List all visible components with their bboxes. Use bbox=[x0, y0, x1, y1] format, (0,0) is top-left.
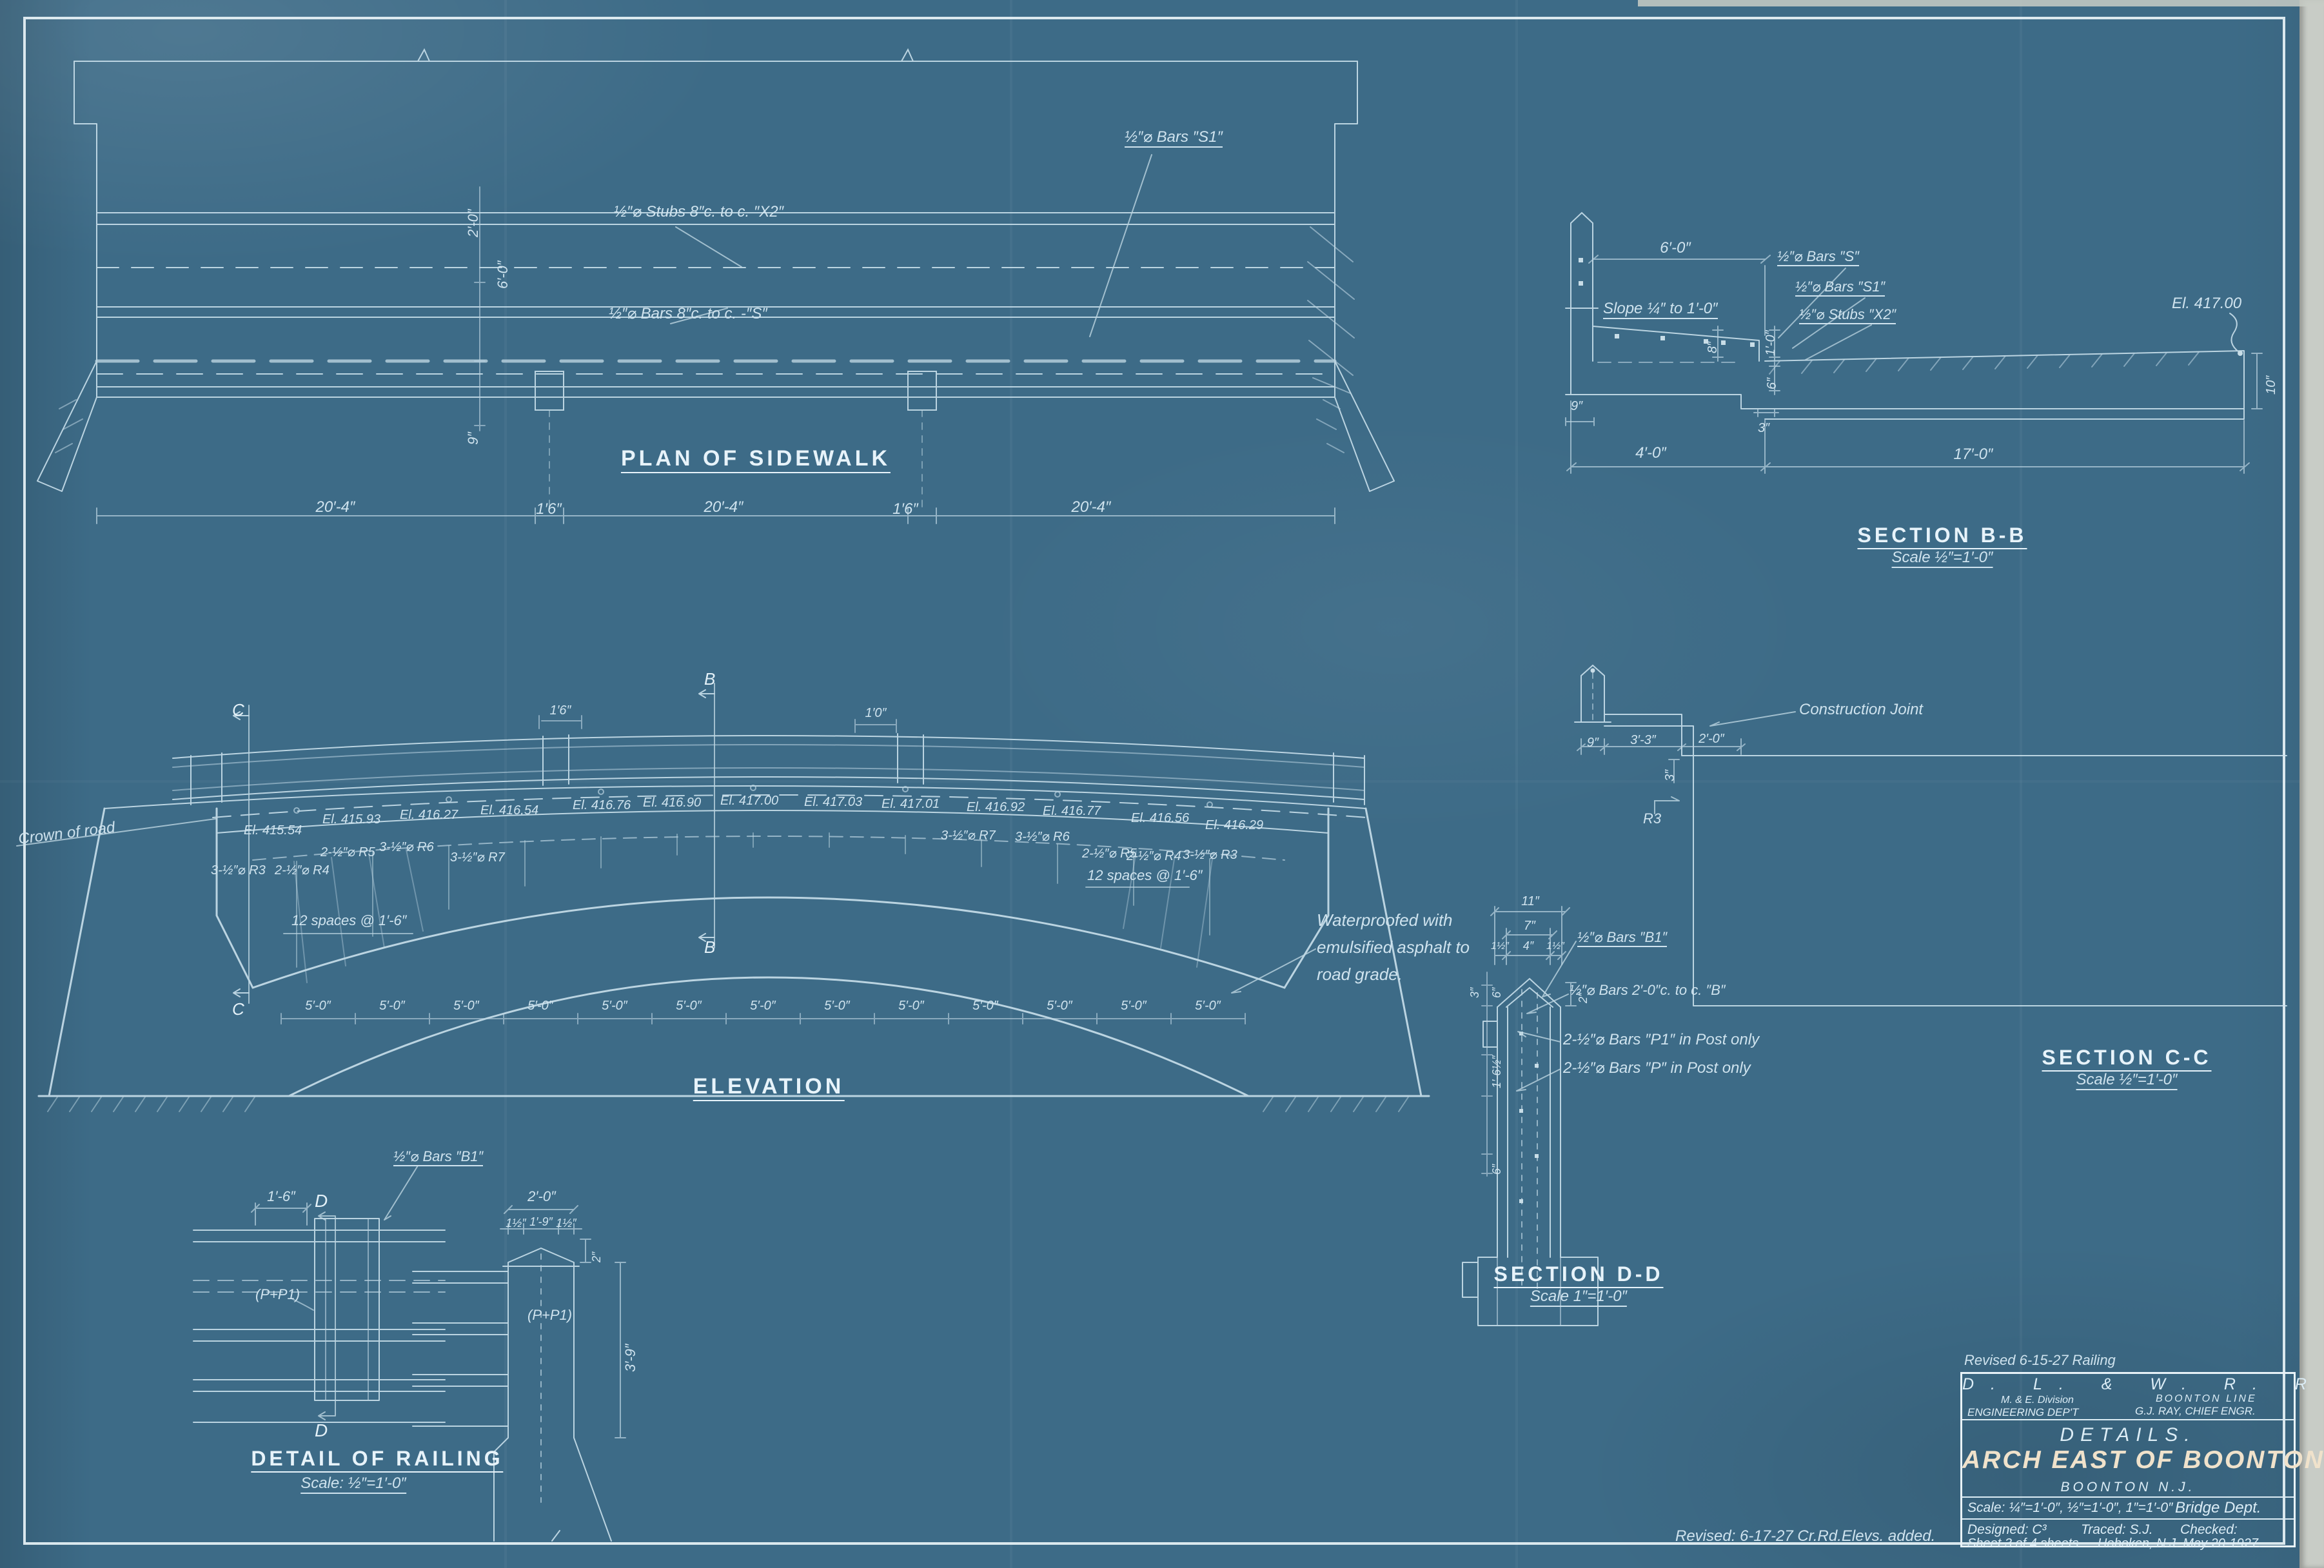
railing-left-dim: 1′-6″ bbox=[267, 1189, 295, 1204]
drawing-title: ARCH EAST OF BOONTON. bbox=[1962, 1446, 2294, 1475]
bb-title: SECTION B-B bbox=[1858, 525, 2027, 549]
arch-dim: 5′-0″ bbox=[750, 999, 776, 1013]
elevation-title: ELEVATION bbox=[693, 1075, 845, 1101]
railing-sub-dim: 1½″ bbox=[506, 1217, 526, 1230]
titleblock-divider bbox=[1962, 1496, 2294, 1498]
bar-label: 3-½″⌀ R3 bbox=[211, 864, 266, 877]
bb-dim-9: 9″ bbox=[1571, 400, 1582, 413]
section-b-marker: B bbox=[704, 671, 715, 688]
traced-label: Traced: S.J. bbox=[2081, 1522, 2153, 1538]
bar-label: 3-½″⌀ R6 bbox=[379, 841, 434, 854]
bar-label: 2-½″⌀ R4 bbox=[1127, 850, 1181, 863]
bb-stubs-label: ½″⌀ Stubs ″X2″ bbox=[1799, 307, 1896, 324]
elevation-value: El. 416.54 bbox=[480, 804, 538, 818]
titleblock-divider bbox=[1962, 1419, 2294, 1420]
cc-dim-3: 3″ bbox=[1664, 770, 1677, 781]
railing-left-bars: (P+P1) bbox=[255, 1287, 300, 1302]
dd-dim-4: 4″ bbox=[1523, 940, 1533, 952]
elevation-value: El. 417.03 bbox=[804, 796, 862, 809]
dd-dim-7: 7″ bbox=[1524, 919, 1535, 933]
bb-dim-17-0: 17′-0″ bbox=[1953, 446, 1993, 462]
bb-bars-s1-label: ½″⌀ Bars ″S1″ bbox=[1795, 279, 1885, 297]
arch-dim: 5′-0″ bbox=[602, 999, 627, 1013]
waterproof-note-line: road grade. bbox=[1317, 966, 1403, 983]
spaces-note: 12 spaces @ 1′-6″ bbox=[291, 913, 407, 928]
cc-dim-3-3: 3′-3″ bbox=[1630, 734, 1656, 747]
dd-dim-1h-r: 1½″ bbox=[1546, 941, 1564, 952]
deck-dim: 1′0″ bbox=[865, 707, 886, 720]
dd-bars-p1-label: 2-½″⌀ Bars ″P1″ in Post only bbox=[1563, 1032, 1759, 1048]
waterproof-note-line: emulsified asphalt to bbox=[1317, 939, 1470, 956]
railing-title: DETAIL OF RAILING bbox=[251, 1448, 503, 1473]
elevation-value: El. 416.92 bbox=[967, 801, 1025, 814]
arch-dim: 5′-0″ bbox=[453, 999, 479, 1013]
title-block: D. L. & W. R. R. M. & E. Division BOONTO… bbox=[1960, 1372, 2296, 1547]
plan-dim: 1′6″ bbox=[892, 501, 918, 517]
dd-scale: Scale 1″=1′-0″ bbox=[1530, 1288, 1627, 1307]
waterproof-note-line: Waterproofed with bbox=[1317, 912, 1453, 929]
checked-label: Checked: bbox=[2180, 1522, 2238, 1538]
plan-dim: 1′6″ bbox=[536, 501, 562, 517]
dd-dim-1h-l: 1½″ bbox=[1491, 941, 1509, 952]
cc-title: SECTION C-C bbox=[2042, 1047, 2212, 1072]
section-c-marker: C bbox=[232, 1001, 244, 1018]
bb-elevation-mark: El. 417.00 bbox=[2172, 295, 2241, 311]
dd-dim-11: 11″ bbox=[1521, 895, 1539, 908]
plan-dim-vert: 2′-0″ bbox=[466, 209, 480, 237]
arch-dim: 5′-0″ bbox=[1121, 999, 1147, 1013]
bb-dim-10: 10″ bbox=[2265, 376, 2278, 395]
arch-dim: 5′-0″ bbox=[1047, 999, 1072, 1013]
section-b-marker: B bbox=[704, 939, 715, 956]
elevation-value: El. 417.01 bbox=[881, 798, 940, 811]
bb-slope-label: Slope ¼″ to 1′-0″ bbox=[1603, 300, 1718, 319]
elevation-value: El. 415.54 bbox=[244, 824, 302, 838]
dd-bars-b-label: ½″⌀ Bars 2′-0″c. to c. ″B″ bbox=[1570, 983, 1726, 997]
arch-dim: 5′-0″ bbox=[379, 999, 405, 1013]
scales-label: Scale: ¼″=1′-0″, ½″=1′-0″, 1″=1′-0″ bbox=[1967, 1500, 2173, 1516]
place-date-label: Hoboken, N.J. May 20-1927. bbox=[2098, 1536, 2262, 1551]
dd-dim-6-top: 6″ bbox=[1491, 988, 1503, 998]
bridge-dept-label: Bridge Dept. bbox=[2175, 1499, 2261, 1517]
dd-dim-3: 3″ bbox=[1469, 988, 1481, 998]
bar-label: 3-½″⌀ R7 bbox=[450, 851, 505, 865]
plan-dim: 20′-4″ bbox=[704, 499, 743, 515]
section-cc-linework bbox=[1575, 665, 2287, 1006]
plan-dim: 20′-4″ bbox=[1071, 499, 1110, 515]
blueprint-sheet: ½″⌀ Stubs 8″c. to c. ″X2″ ½″⌀ Bars 8″c. … bbox=[0, 0, 2324, 1568]
railing-right-bars: (P+P1) bbox=[527, 1308, 572, 1322]
elevation-value: El. 417.00 bbox=[720, 794, 778, 808]
dd-dim-6-bot: 6″ bbox=[1491, 1164, 1503, 1175]
spaces-note: 12 spaces @ 1′-6″ bbox=[1087, 868, 1203, 883]
bb-dim-6: 6″ bbox=[1766, 378, 1779, 389]
elevation-value: El. 416.90 bbox=[643, 796, 701, 810]
elevation-value: El. 416.76 bbox=[573, 799, 631, 812]
section-d-marker: D bbox=[315, 1421, 328, 1440]
railroad-name: D. L. & W. R. R. bbox=[1962, 1375, 2294, 1394]
arch-dim: 5′-0″ bbox=[1195, 999, 1221, 1013]
division-label: M. & E. Division bbox=[2001, 1395, 2074, 1406]
arch-dim: 5′-0″ bbox=[972, 999, 998, 1013]
cc-dim-2-0: 2′-0″ bbox=[1699, 732, 1724, 746]
department-label: ENGINEERING DEP'T bbox=[1967, 1406, 2078, 1419]
railing-sub-dim: 1′-9″ bbox=[529, 1216, 553, 1228]
bb-dim-4-0: 4′-0″ bbox=[1635, 445, 1666, 461]
elevation-value: El. 416.29 bbox=[1205, 819, 1263, 832]
section-d-marker: D bbox=[315, 1191, 328, 1210]
bar-label: 3-½″⌀ R6 bbox=[1015, 830, 1070, 844]
elevation-value: El. 416.27 bbox=[400, 808, 458, 822]
location-label: BOONTON N.J. bbox=[1962, 1480, 2294, 1495]
titleblock-divider bbox=[1962, 1518, 2294, 1520]
elevation-value: El. 416.56 bbox=[1131, 812, 1189, 825]
plan-dim: 20′-4″ bbox=[315, 499, 355, 515]
plan-bars-s-label: ½″⌀ Bars 8″c. to c. -″S″ bbox=[609, 306, 767, 322]
elevation-linework bbox=[17, 683, 1429, 1112]
railing-dim-2: 2″ bbox=[591, 1252, 603, 1262]
dd-bars-p-label: 2-½″⌀ Bars ″P″ in Post only bbox=[1563, 1060, 1751, 1076]
revision-note-bottom: Revised: 6-17-27 Cr.Rd.Elevs. added. bbox=[1675, 1528, 1935, 1544]
railing-height-dim: 3′-9″ bbox=[623, 1344, 638, 1372]
bb-dim-8: 8″ bbox=[1706, 342, 1720, 353]
cc-joint-label: Construction Joint bbox=[1799, 701, 1923, 718]
bb-dim-6-0: 6′-0″ bbox=[1660, 240, 1691, 256]
arch-dim: 5′-0″ bbox=[527, 999, 553, 1013]
arch-dim: 5′-0″ bbox=[898, 999, 924, 1013]
plan-title: PLAN OF SIDEWALK bbox=[621, 447, 891, 473]
plan-stubs-label: ½″⌀ Stubs 8″c. to c. ″X2″ bbox=[614, 204, 783, 220]
bb-dim-3: 3″ bbox=[1758, 422, 1769, 435]
chief-engineer-label: G.J. RAY, CHIEF ENGR. bbox=[2135, 1405, 2256, 1418]
revision-note-top: Revised 6-15-27 Railing bbox=[1964, 1353, 2116, 1367]
plan-dim-vert: 6′-0″ bbox=[495, 260, 510, 289]
arch-dim: 5′-0″ bbox=[676, 999, 702, 1013]
plan-bars-s1-label: ½″⌀ Bars ″S1″ bbox=[1125, 129, 1223, 148]
sheet-number-label: Sheet 3 of 4 sheets bbox=[1967, 1536, 2078, 1551]
plan-dim-vert: 9″ bbox=[466, 432, 480, 445]
dd-dim-1-6h: 1′-6½″ bbox=[1491, 1055, 1503, 1088]
bar-label: 2-½″⌀ R4 bbox=[275, 864, 330, 877]
arch-dim: 5′-0″ bbox=[824, 999, 850, 1013]
designed-label: Designed: C³ bbox=[1967, 1522, 2047, 1538]
bb-bars-s-label: ½″⌀ Bars ″S″ bbox=[1777, 249, 1859, 266]
bar-label: 3-½″⌀ R3 bbox=[1183, 848, 1237, 862]
cc-dim-9: 9″ bbox=[1587, 736, 1599, 750]
arch-dim: 5′-0″ bbox=[305, 999, 331, 1013]
dd-bars-b1-label: ½″⌀ Bars ″B1″ bbox=[1577, 930, 1667, 947]
drawing-subtitle: DETAILS. bbox=[1962, 1424, 2294, 1446]
railing-scale: Scale: ½″=1′-0″ bbox=[300, 1475, 406, 1494]
bar-label: 3-½″⌀ R7 bbox=[941, 829, 996, 843]
railing-bars-b1-label: ½″⌀ Bars ″B1″ bbox=[393, 1149, 483, 1166]
section-c-marker: C bbox=[232, 701, 244, 719]
line-label: BOONTON LINE bbox=[2156, 1393, 2257, 1405]
cc-bar-mark: R3 bbox=[1643, 811, 1661, 826]
railing-sub-dim: 1½″ bbox=[556, 1217, 576, 1230]
cc-scale: Scale ½″=1′-0″ bbox=[2076, 1072, 2178, 1090]
elevation-value: El. 416.77 bbox=[1043, 805, 1101, 818]
elevation-value: El. 415.93 bbox=[322, 813, 380, 827]
railing-right-dim: 2′-0″ bbox=[527, 1189, 556, 1204]
drawing-linework bbox=[0, 0, 2324, 1568]
deck-dim: 1′6″ bbox=[549, 704, 571, 718]
bb-dim-1-0: 1′-0″ bbox=[1764, 330, 1778, 356]
dd-title: SECTION D-D bbox=[1494, 1264, 1664, 1288]
bb-scale: Scale ½″=1′-0″ bbox=[1892, 549, 1993, 568]
bar-label: 2-½″⌀ R5 bbox=[320, 846, 375, 859]
